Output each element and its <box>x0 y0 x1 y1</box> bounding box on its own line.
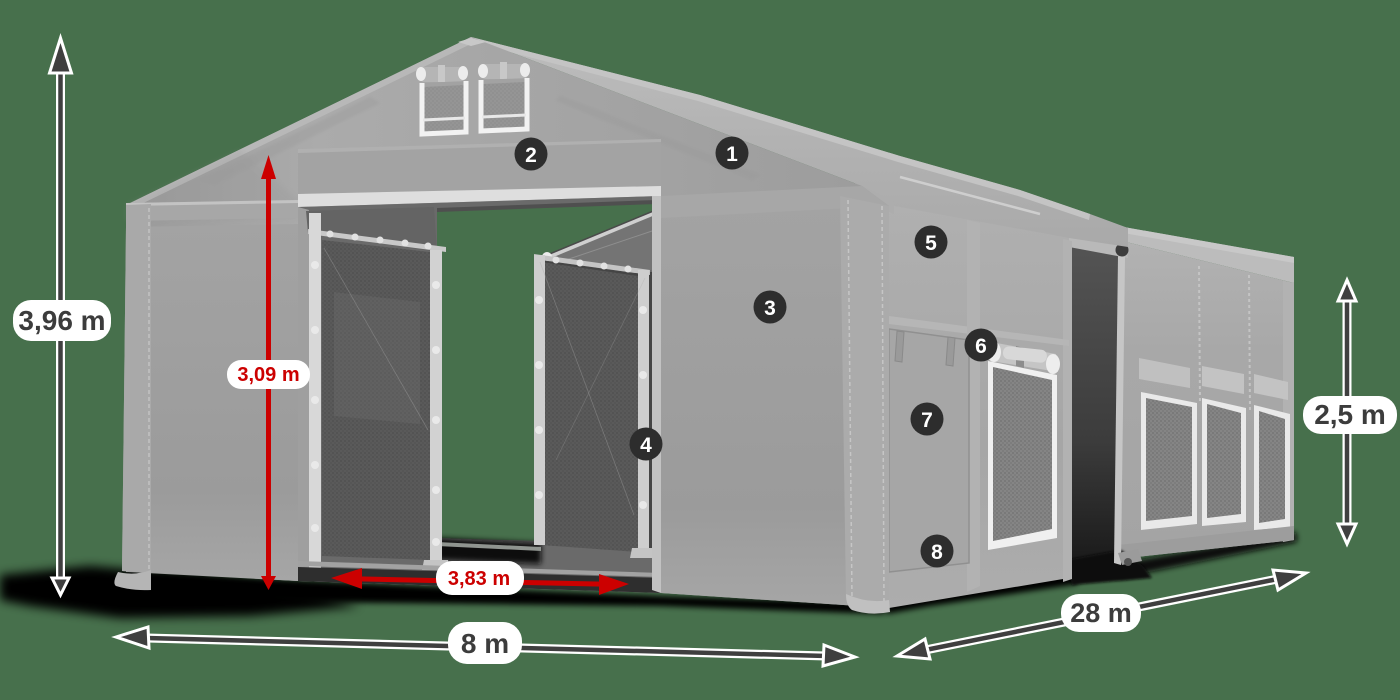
svg-text:3,09 m: 3,09 m <box>237 364 299 386</box>
svg-text:5: 5 <box>925 232 937 255</box>
svg-text:3,83 m: 3,83 m <box>448 568 510 590</box>
svg-text:8: 8 <box>931 541 943 564</box>
svg-text:4: 4 <box>640 434 652 457</box>
svg-text:6: 6 <box>975 335 987 358</box>
svg-text:2: 2 <box>525 144 537 167</box>
svg-text:7: 7 <box>921 409 933 432</box>
svg-text:3: 3 <box>764 297 776 320</box>
svg-text:8 m: 8 m <box>461 628 509 659</box>
svg-text:2,5 m: 2,5 m <box>1314 399 1386 430</box>
svg-text:3,96 m: 3,96 m <box>18 305 105 336</box>
svg-text:1: 1 <box>726 143 738 166</box>
svg-text:28 m: 28 m <box>1070 598 1132 628</box>
